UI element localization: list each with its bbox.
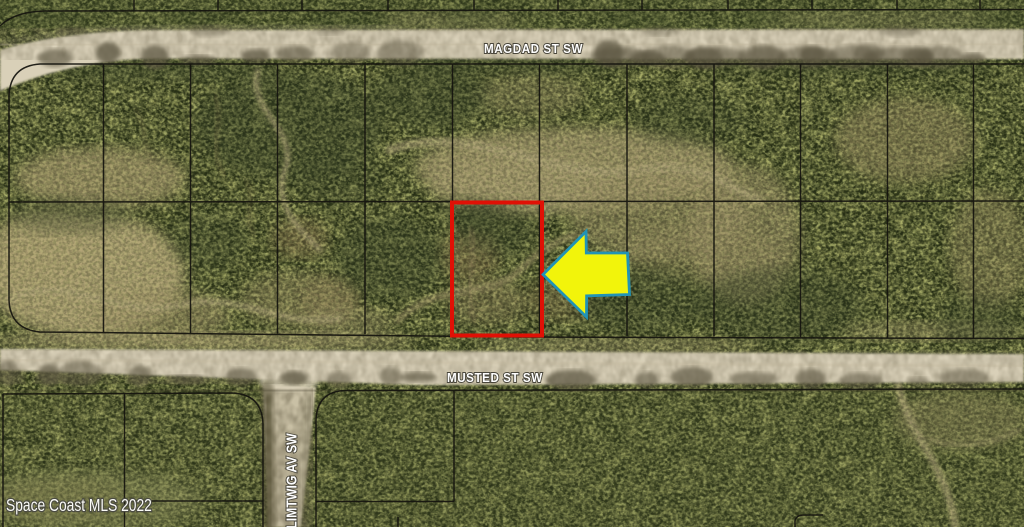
svg-text:MAGDAD ST SW: MAGDAD ST SW — [484, 42, 583, 56]
svg-text:MUSTED ST SW: MUSTED ST SW — [447, 371, 543, 385]
svg-text:SLIMTWIG AV SW: SLIMTWIG AV SW — [283, 433, 299, 527]
svg-text:Space Coast MLS 2022: Space Coast MLS 2022 — [6, 497, 152, 516]
